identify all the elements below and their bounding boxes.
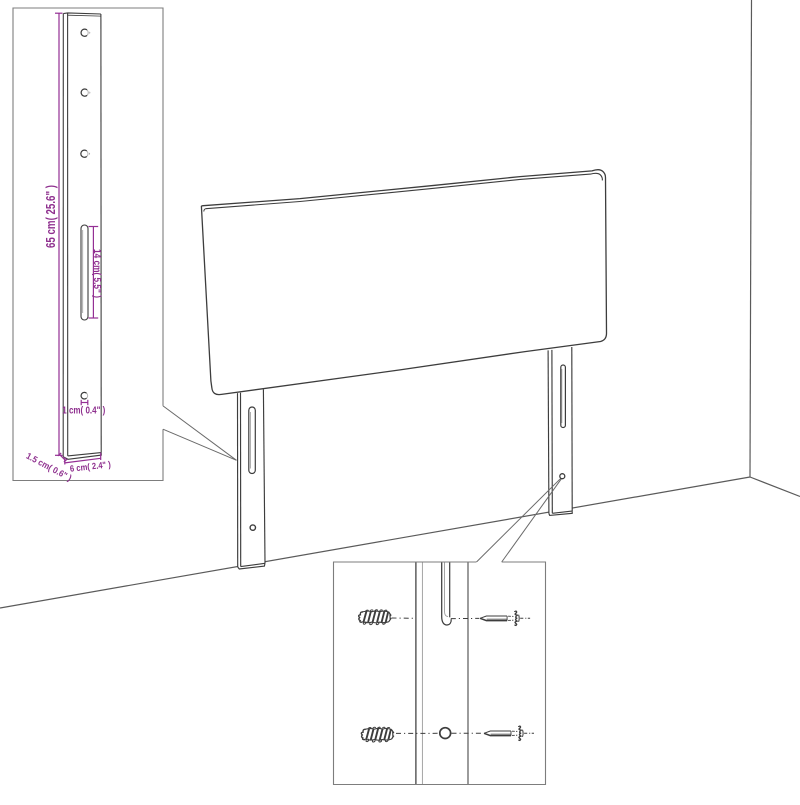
svg-text:65 cm( 25.6" ): 65 cm( 25.6" ): [43, 185, 58, 248]
svg-text:1 cm( 0.4" ): 1 cm( 0.4" ): [62, 405, 105, 416]
svg-text:14 cm( 5.5" ): 14 cm( 5.5" ): [91, 249, 102, 298]
